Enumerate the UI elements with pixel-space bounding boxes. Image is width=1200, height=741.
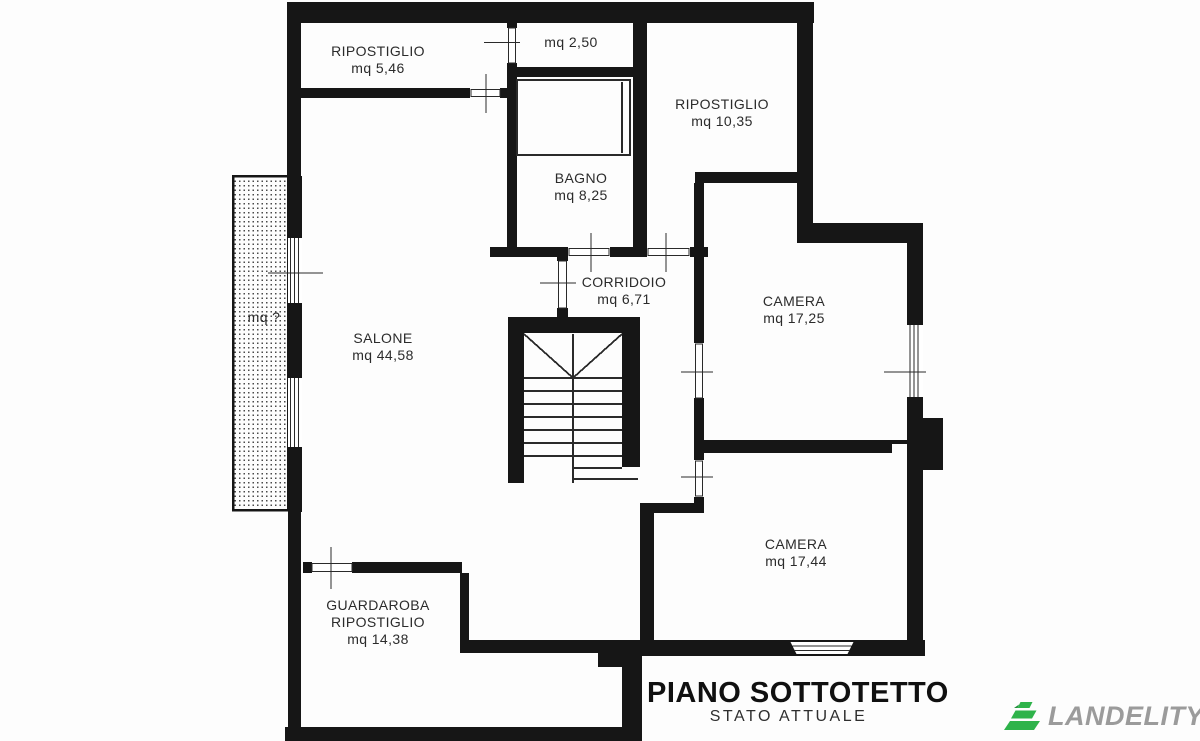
room-area: mq 2,50 <box>544 34 597 51</box>
bathtub <box>517 80 630 155</box>
room-label-ripostiglio-nw: RIPOSTIGLIO mq 5,46 <box>331 43 425 77</box>
room-area: mq 10,35 <box>691 113 753 130</box>
plan-subtitle: STATO ATTUALE <box>647 708 930 726</box>
plan-title: PIANO SOTTOTETTO <box>647 678 947 708</box>
room-name: BAGNO <box>555 170 608 187</box>
room-label-bagno: BAGNO mq 8,25 <box>554 170 607 204</box>
stairwell <box>508 317 640 483</box>
room-label-guardaroba: GUARDAROBA RIPOSTIGLIO mq 14,38 <box>326 597 430 648</box>
brand-logo: LANDELITY <box>1002 699 1200 732</box>
room-name: RIPOSTIGLIO <box>675 96 769 113</box>
room-label-camera-sud: CAMERA mq 17,44 <box>765 536 827 570</box>
room-area: mq 44,58 <box>352 347 414 364</box>
floorplan-page: RIPOSTIGLIO mq 5,46 mq 2,50 RIPOSTIGLIO … <box>0 0 1200 741</box>
room-area: mq ? <box>248 309 281 326</box>
room-name: CORRIDOIO <box>582 274 667 291</box>
room-name: SALONE <box>353 330 412 347</box>
room-area: mq 8,25 <box>554 187 607 204</box>
room-label-vano-piccolo: mq 2,50 <box>544 34 597 51</box>
room-label-salone: SALONE mq 44,58 <box>352 330 414 364</box>
room-name: RIPOSTIGLIO <box>331 43 425 60</box>
room-area: mq 6,71 <box>597 291 650 308</box>
room-area: mq 5,46 <box>351 60 404 77</box>
title-block: PIANO SOTTOTETTO STATO ATTUALE <box>647 678 947 726</box>
room-area: mq 17,25 <box>763 310 825 327</box>
room-label-ripostiglio-ne: RIPOSTIGLIO mq 10,35 <box>675 96 769 130</box>
room-name: GUARDAROBA <box>326 597 430 614</box>
room-label-camera-est: CAMERA mq 17,25 <box>763 293 825 327</box>
logo-icon <box>1002 699 1043 732</box>
logo-text: LANDELITY <box>1048 700 1200 732</box>
floor-plan-drawing <box>0 0 1200 741</box>
room-name-2: RIPOSTIGLIO <box>331 614 425 631</box>
terrace-hatch <box>233 176 288 510</box>
room-label-terrazza: mq ? <box>248 309 281 326</box>
stair-treads <box>524 334 638 483</box>
room-area: mq 17,44 <box>765 553 827 570</box>
room-name: CAMERA <box>765 536 827 553</box>
room-area: mq 14,38 <box>347 631 409 648</box>
room-name: CAMERA <box>763 293 825 310</box>
room-label-corridoio: CORRIDOIO mq 6,71 <box>582 274 667 308</box>
